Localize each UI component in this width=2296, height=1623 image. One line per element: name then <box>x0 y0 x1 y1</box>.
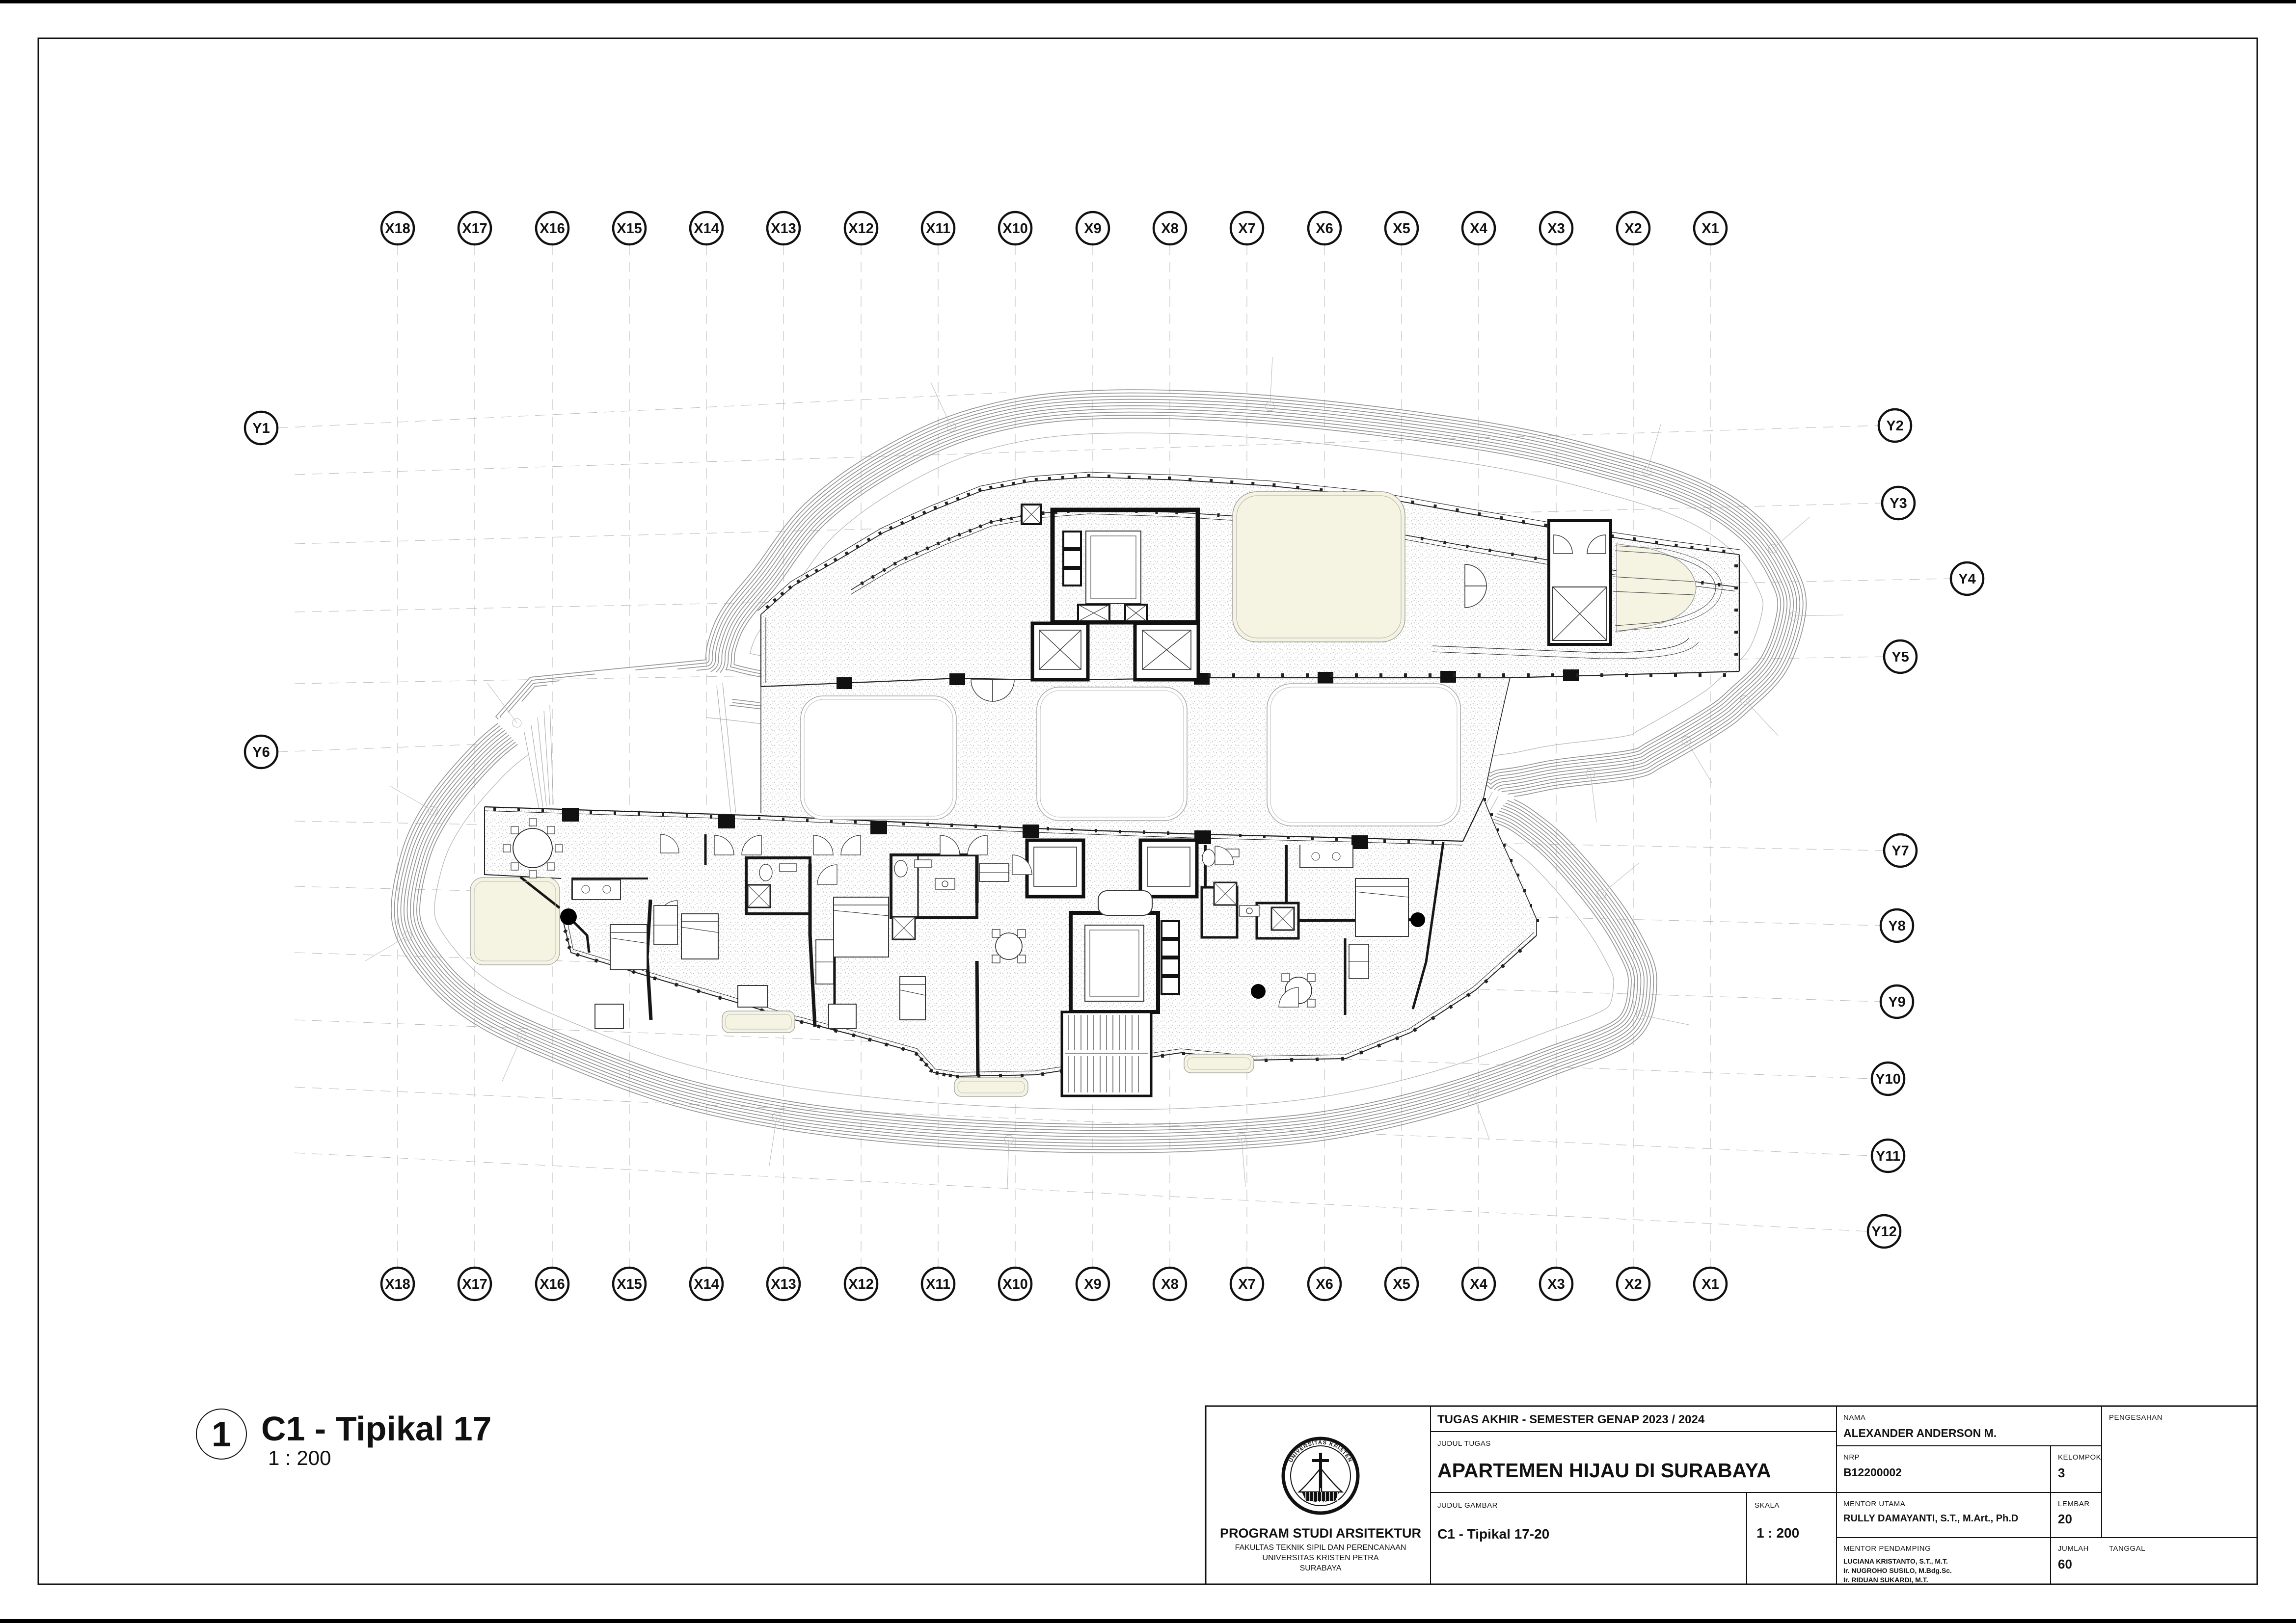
svg-text:JUDUL TUGAS: JUDUL TUGAS <box>1437 1439 1491 1448</box>
svg-text:B12200002: B12200002 <box>1843 1466 1902 1479</box>
svg-text:LUCIANA KRISTANTO, S.T., M.T.: LUCIANA KRISTANTO, S.T., M.T. <box>1843 1557 1948 1565</box>
svg-text:LEMBAR: LEMBAR <box>2058 1500 2090 1508</box>
svg-text:X14: X14 <box>694 221 719 237</box>
svg-text:Y9: Y9 <box>1888 994 1905 1010</box>
svg-text:Y11: Y11 <box>1876 1148 1900 1164</box>
svg-text:Y12: Y12 <box>1871 1224 1897 1240</box>
svg-text:X15: X15 <box>617 221 642 237</box>
svg-text:X17: X17 <box>462 1277 487 1292</box>
svg-text:X1: X1 <box>1702 221 1719 237</box>
svg-text:X5: X5 <box>1393 221 1410 237</box>
svg-text:Y6: Y6 <box>252 745 270 760</box>
svg-text:X5: X5 <box>1393 1277 1410 1292</box>
svg-text:X12: X12 <box>848 221 874 237</box>
svg-text:X6: X6 <box>1316 221 1333 237</box>
svg-text:Y10: Y10 <box>1875 1071 1901 1087</box>
svg-text:Y4: Y4 <box>1958 571 1975 587</box>
svg-text:SKALA: SKALA <box>1755 1501 1780 1510</box>
svg-text:X16: X16 <box>540 221 565 237</box>
svg-text:RULLY DAMAYANTI, S.T., M.Art.,: RULLY DAMAYANTI, S.T., M.Art., Ph.D <box>1843 1513 2018 1524</box>
svg-text:X13: X13 <box>771 1277 796 1292</box>
svg-text:X8: X8 <box>1161 221 1178 237</box>
svg-text:NRP: NRP <box>1843 1453 1860 1462</box>
svg-text:JUDUL GAMBAR: JUDUL GAMBAR <box>1437 1501 1498 1510</box>
svg-text:NAMA: NAMA <box>1843 1413 1865 1422</box>
svg-text:X10: X10 <box>1002 1277 1028 1292</box>
svg-text:20: 20 <box>2058 1512 2072 1526</box>
svg-text:UNIVERSITAS KRISTEN PETRA: UNIVERSITAS KRISTEN PETRA <box>1262 1554 1378 1562</box>
svg-text:X8: X8 <box>1161 1277 1178 1292</box>
svg-text:X18: X18 <box>385 1277 410 1292</box>
svg-text:X18: X18 <box>385 221 410 237</box>
svg-text:X4: X4 <box>1470 1277 1487 1292</box>
svg-text:X4: X4 <box>1470 221 1487 237</box>
svg-text:Y3: Y3 <box>1890 496 1907 511</box>
svg-text:X7: X7 <box>1238 1277 1255 1292</box>
svg-text:TUGAS AKHIR - SEMESTER GENAP 2: TUGAS AKHIR - SEMESTER GENAP 2023 / 2024 <box>1437 1413 1705 1426</box>
svg-text:X3: X3 <box>1547 1277 1565 1292</box>
svg-text:X15: X15 <box>617 1277 642 1292</box>
svg-text:X12: X12 <box>848 1277 874 1292</box>
svg-text:JUMLAH: JUMLAH <box>2058 1544 2089 1553</box>
svg-text:ALEXANDER ANDERSON M.: ALEXANDER ANDERSON M. <box>1843 1427 1997 1439</box>
svg-text:SURABAYA: SURABAYA <box>1300 1564 1342 1572</box>
svg-text:X7: X7 <box>1238 221 1255 237</box>
svg-text:MENTOR PENDAMPING: MENTOR PENDAMPING <box>1843 1544 1931 1553</box>
svg-text:MENTOR UTAMA: MENTOR UTAMA <box>1843 1500 1905 1508</box>
svg-text:X10: X10 <box>1002 221 1028 237</box>
svg-text:1 : 200: 1 : 200 <box>1756 1525 1799 1541</box>
svg-text:TANGGAL: TANGGAL <box>2109 1544 2145 1553</box>
svg-text:X11: X11 <box>926 1277 950 1292</box>
svg-text:60: 60 <box>2058 1557 2072 1571</box>
svg-text:X17: X17 <box>462 221 487 237</box>
svg-text:PENGESAHAN: PENGESAHAN <box>2109 1413 2162 1422</box>
svg-text:X2: X2 <box>1624 1277 1642 1292</box>
svg-text:FAKULTAS TEKNIK SIPIL DAN PERE: FAKULTAS TEKNIK SIPIL DAN PERENCANAAN <box>1235 1543 1406 1552</box>
svg-text:X2: X2 <box>1624 221 1642 237</box>
svg-text:C1 - Tipikal 17: C1 - Tipikal 17 <box>261 1410 491 1448</box>
svg-text:Y7: Y7 <box>1891 843 1909 859</box>
svg-text:PROGRAM STUDI ARSITEKTUR: PROGRAM STUDI ARSITEKTUR <box>1220 1526 1421 1541</box>
svg-text:APARTEMEN HIJAU DI SURABAYA: APARTEMEN HIJAU DI SURABAYA <box>1437 1459 1771 1482</box>
svg-text:X11: X11 <box>926 221 950 237</box>
svg-text:Y8: Y8 <box>1888 918 1905 934</box>
svg-text:1: 1 <box>212 1415 231 1454</box>
svg-text:1 : 200: 1 : 200 <box>268 1446 331 1469</box>
svg-text:X14: X14 <box>694 1277 719 1292</box>
svg-text:Ir. NUGROHO SUSILO, M.Bdg.Sc.: Ir. NUGROHO SUSILO, M.Bdg.Sc. <box>1843 1567 1952 1574</box>
svg-text:X13: X13 <box>771 221 796 237</box>
svg-text:KELOMPOK: KELOMPOK <box>2058 1453 2101 1462</box>
svg-text:C1 - Tipikal 17-20: C1 - Tipikal 17-20 <box>1437 1526 1549 1542</box>
svg-text:X9: X9 <box>1084 221 1101 237</box>
svg-text:Y1: Y1 <box>252 421 270 436</box>
svg-text:X9: X9 <box>1084 1277 1101 1292</box>
svg-text:Y2: Y2 <box>1886 418 1903 434</box>
svg-text:Y5: Y5 <box>1891 649 1909 665</box>
svg-text:X6: X6 <box>1316 1277 1333 1292</box>
svg-text:X1: X1 <box>1702 1277 1719 1292</box>
svg-text:X3: X3 <box>1547 221 1565 237</box>
svg-text:Ir. RIDUAN SUKARDI, M.T.: Ir. RIDUAN SUKARDI, M.T. <box>1843 1576 1928 1584</box>
svg-text:X16: X16 <box>540 1277 565 1292</box>
svg-text:3: 3 <box>2058 1465 2065 1480</box>
